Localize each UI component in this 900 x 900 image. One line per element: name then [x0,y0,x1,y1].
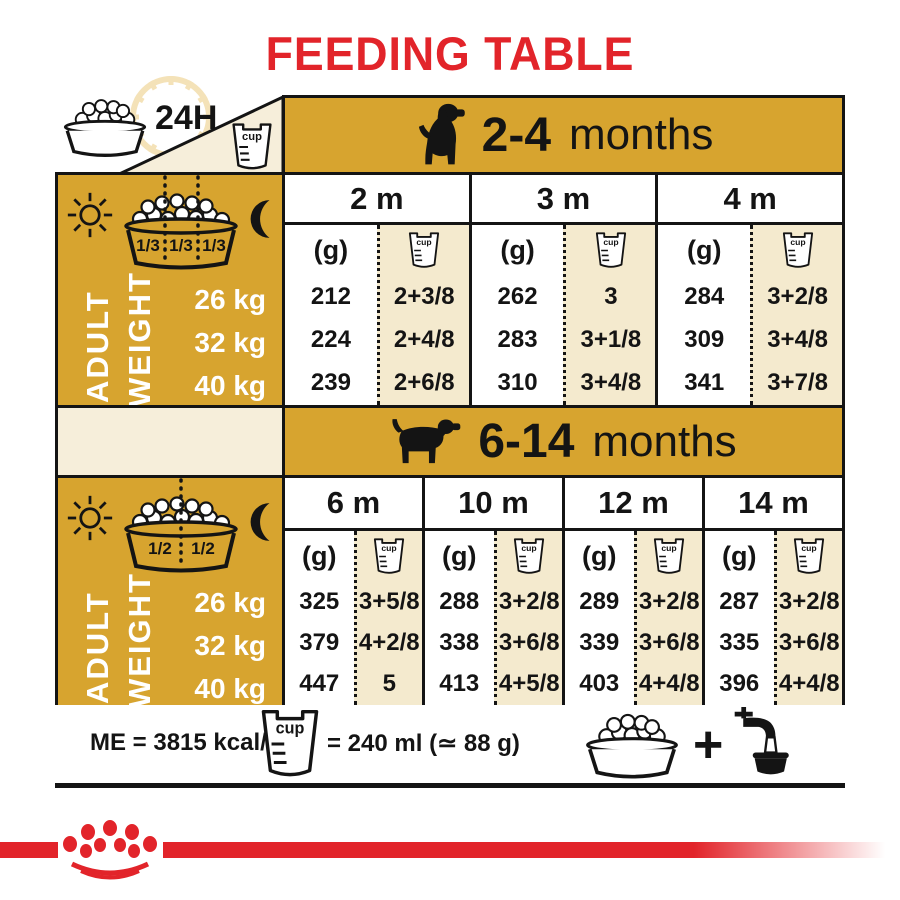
puppy-icon [414,102,466,168]
month-header-row-1: 2 m 3 m 4 m [282,172,845,225]
month-header-row-2: 6 m 10 m 12 m 14 m [282,475,845,531]
cup-value: 2+4/8 [394,326,455,354]
portion-label: 1/3 [202,236,226,255]
cup-value: 3+2/8 [639,588,700,616]
cup-subcolumn: 3+5/8 4+2/8 5 [354,531,423,705]
cup-value: 4+2/8 [359,629,420,657]
grams-value: 262 [498,283,538,311]
cup-value: 4+4/8 [779,670,840,698]
cup-value: 3+2/8 [767,283,828,311]
measuring-cup-icon [782,232,814,269]
portion-bowl-thirds-icon: 1/3 1/3 1/3 [104,175,262,273]
data-column-14m: (g) 287 335 396 3+2/8 3+6/8 4+4/8 [705,531,842,705]
data-column-4m: (g) 284 309 341 3+2/8 3+4/8 3+7/8 [658,225,842,405]
grams-value: 338 [439,629,479,657]
month-header: 10 m [425,478,562,528]
weight-32kg: 32 kg [176,631,266,661]
cup-value: 2+6/8 [394,369,455,397]
data-column-2m: (g) 212 224 239 2+3/8 2+4/8 2+6/8 [285,225,469,405]
cup-value: 2+3/8 [394,283,455,311]
adult-label: ADULT [80,275,116,403]
cup-value: 3+6/8 [779,629,840,657]
brand-stripe-right [163,842,900,858]
feeding-table-page: FEEDING TABLE [0,0,900,900]
cup-value: 3+1/8 [581,326,642,354]
grams-value: 284 [684,283,724,311]
month-header: 6 m [285,478,422,528]
cup-value: 3 [604,283,617,311]
cup-value: 5 [383,670,396,698]
grams-header: (g) [314,235,348,266]
royal-canin-crown-logo [60,820,160,886]
weight-26kg: 26 kg [176,588,266,618]
feeding-table: 24H 2-4 months 2 m 3 m 4 m [55,95,845,788]
grams-header: (g) [442,541,476,572]
portion-label: 1/3 [169,236,193,255]
age-unit: months [569,110,713,160]
cup-subcolumn: 3+2/8 3+6/8 4+4/8 [774,531,843,705]
food-bowl-icon [577,707,687,783]
weight-40kg: 40 kg [176,674,266,704]
measuring-cup-icon [653,538,685,575]
data-zone-2-4-months: (g) 212 224 239 2+3/8 2+4/8 2+6/8 (g) 26… [282,222,845,408]
cup-value: 3+7/8 [767,369,828,397]
age-header-2-4-months: 2-4 months [282,95,845,175]
plus-sign: + [693,715,723,775]
portion-label: 1/2 [191,539,215,558]
adult-label: ADULT [80,576,116,704]
data-column-12m: (g) 289 339 403 3+2/8 3+6/8 4+4/8 [565,531,702,705]
measuring-cup-icon [260,709,320,779]
footer-legend: ME = 3815 kcal/kg = 240 ml (≃ 88 g) + [55,705,845,783]
weight-32kg: 32 kg [176,328,266,358]
age-range: 2-4 [482,108,551,163]
cup-equivalence-label: = 240 ml (≃ 88 g) [327,729,520,758]
cup-subcolumn: 3+2/8 3+6/8 4+5/8 [494,531,563,705]
grams-value: 309 [684,326,724,354]
grams-value: 212 [311,283,351,311]
grams-value: 289 [579,588,619,616]
grams-header: (g) [687,235,721,266]
diagonal-triangle [55,95,285,178]
month-header: 4 m [658,175,842,222]
cup-value: 3+2/8 [499,588,560,616]
portion-label: 1/3 [136,236,160,255]
adult-dog-icon [390,415,462,469]
measuring-cup-icon [408,232,440,269]
cup-value: 3+6/8 [639,629,700,657]
water-tap-icon [731,707,801,781]
data-column-3m: (g) 262 283 310 3 3+1/8 3+4/8 [472,225,656,405]
measuring-cup-icon [793,538,825,575]
moon-icon [244,500,278,544]
data-zone-6-14-months: (g) 325 379 447 3+5/8 4+2/8 5 (g) 288 33… [282,528,845,708]
grams-value: 287 [719,588,759,616]
cup-subcolumn: 3 3+1/8 3+4/8 [563,225,655,405]
cup-value: 3+5/8 [359,588,420,616]
measuring-cup-icon [234,125,271,169]
grams-value: 283 [498,326,538,354]
moon-icon [244,197,278,241]
cup-subcolumn: 3+2/8 3+4/8 3+7/8 [750,225,842,405]
age-header-6-14-months: 6-14 months [282,405,845,478]
age-range: 6-14 [478,414,574,469]
grams-value: 239 [311,369,351,397]
cup-value: 4+4/8 [639,670,700,698]
measuring-cup-icon [595,232,627,269]
grams-value: 396 [719,670,759,698]
grams-value: 403 [579,670,619,698]
data-column-10m: (g) 288 338 413 3+2/8 3+6/8 4+5/8 [425,531,562,705]
cup-value: 4+5/8 [499,670,560,698]
adult-weight-sidebar-2: 1/2 1/2 ADULT WEIGHT 26 kg 32 kg 40 kg [55,475,285,708]
adult-weight-sidebar-1: 1/3 1/3 1/3 ADULT WEIGHT 26 kg 32 kg 40 … [55,172,285,408]
grams-header: (g) [302,541,336,572]
portion-bowl-halves-icon: 1/2 1/2 [104,478,262,576]
data-column-6m: (g) 325 379 447 3+5/8 4+2/8 5 [285,531,422,705]
brand-stripe-left [0,842,58,858]
cup-value: 3+2/8 [779,588,840,616]
grams-subcolumn: (g) 212 224 239 [285,225,377,405]
cream-spacer-block [55,405,285,478]
grams-subcolumn: (g) 287 335 396 [705,531,774,705]
grams-value: 288 [439,588,479,616]
weight-40kg: 40 kg [176,371,266,401]
weight-label: WEIGHT [122,568,158,708]
grams-subcolumn: (g) 284 309 341 [658,225,750,405]
grams-subcolumn: (g) 262 283 310 [472,225,564,405]
cup-value: 3+6/8 [499,629,560,657]
month-header: 14 m [705,478,842,528]
grams-value: 379 [299,629,339,657]
cup-subcolumn: 2+3/8 2+4/8 2+6/8 [377,225,469,405]
grams-value: 341 [684,369,724,397]
grams-header: (g) [582,541,616,572]
grams-value: 224 [311,326,351,354]
cup-value: 3+4/8 [767,326,828,354]
grams-header: (g) [500,235,534,266]
grams-subcolumn: (g) 325 379 447 [285,531,354,705]
portion-label: 1/2 [148,539,172,558]
month-header: 12 m [565,478,702,528]
measuring-cup-icon [513,538,545,575]
cup-value: 3+4/8 [581,369,642,397]
grams-value: 339 [579,629,619,657]
grams-header: (g) [722,541,756,572]
bottom-rule [55,783,845,788]
measuring-cup-icon [373,538,405,575]
grams-value: 447 [299,670,339,698]
age-unit: months [592,417,736,467]
grams-value: 413 [439,670,479,698]
cup-subcolumn: 3+2/8 3+6/8 4+4/8 [634,531,703,705]
weight-label: WEIGHT [122,267,158,407]
grams-value: 325 [299,588,339,616]
grams-subcolumn: (g) 289 339 403 [565,531,634,705]
grams-value: 335 [719,629,759,657]
weight-26kg: 26 kg [176,285,266,315]
grams-value: 310 [498,369,538,397]
grams-subcolumn: (g) 288 338 413 [425,531,494,705]
month-header: 2 m [285,175,469,222]
month-header: 3 m [472,175,656,222]
